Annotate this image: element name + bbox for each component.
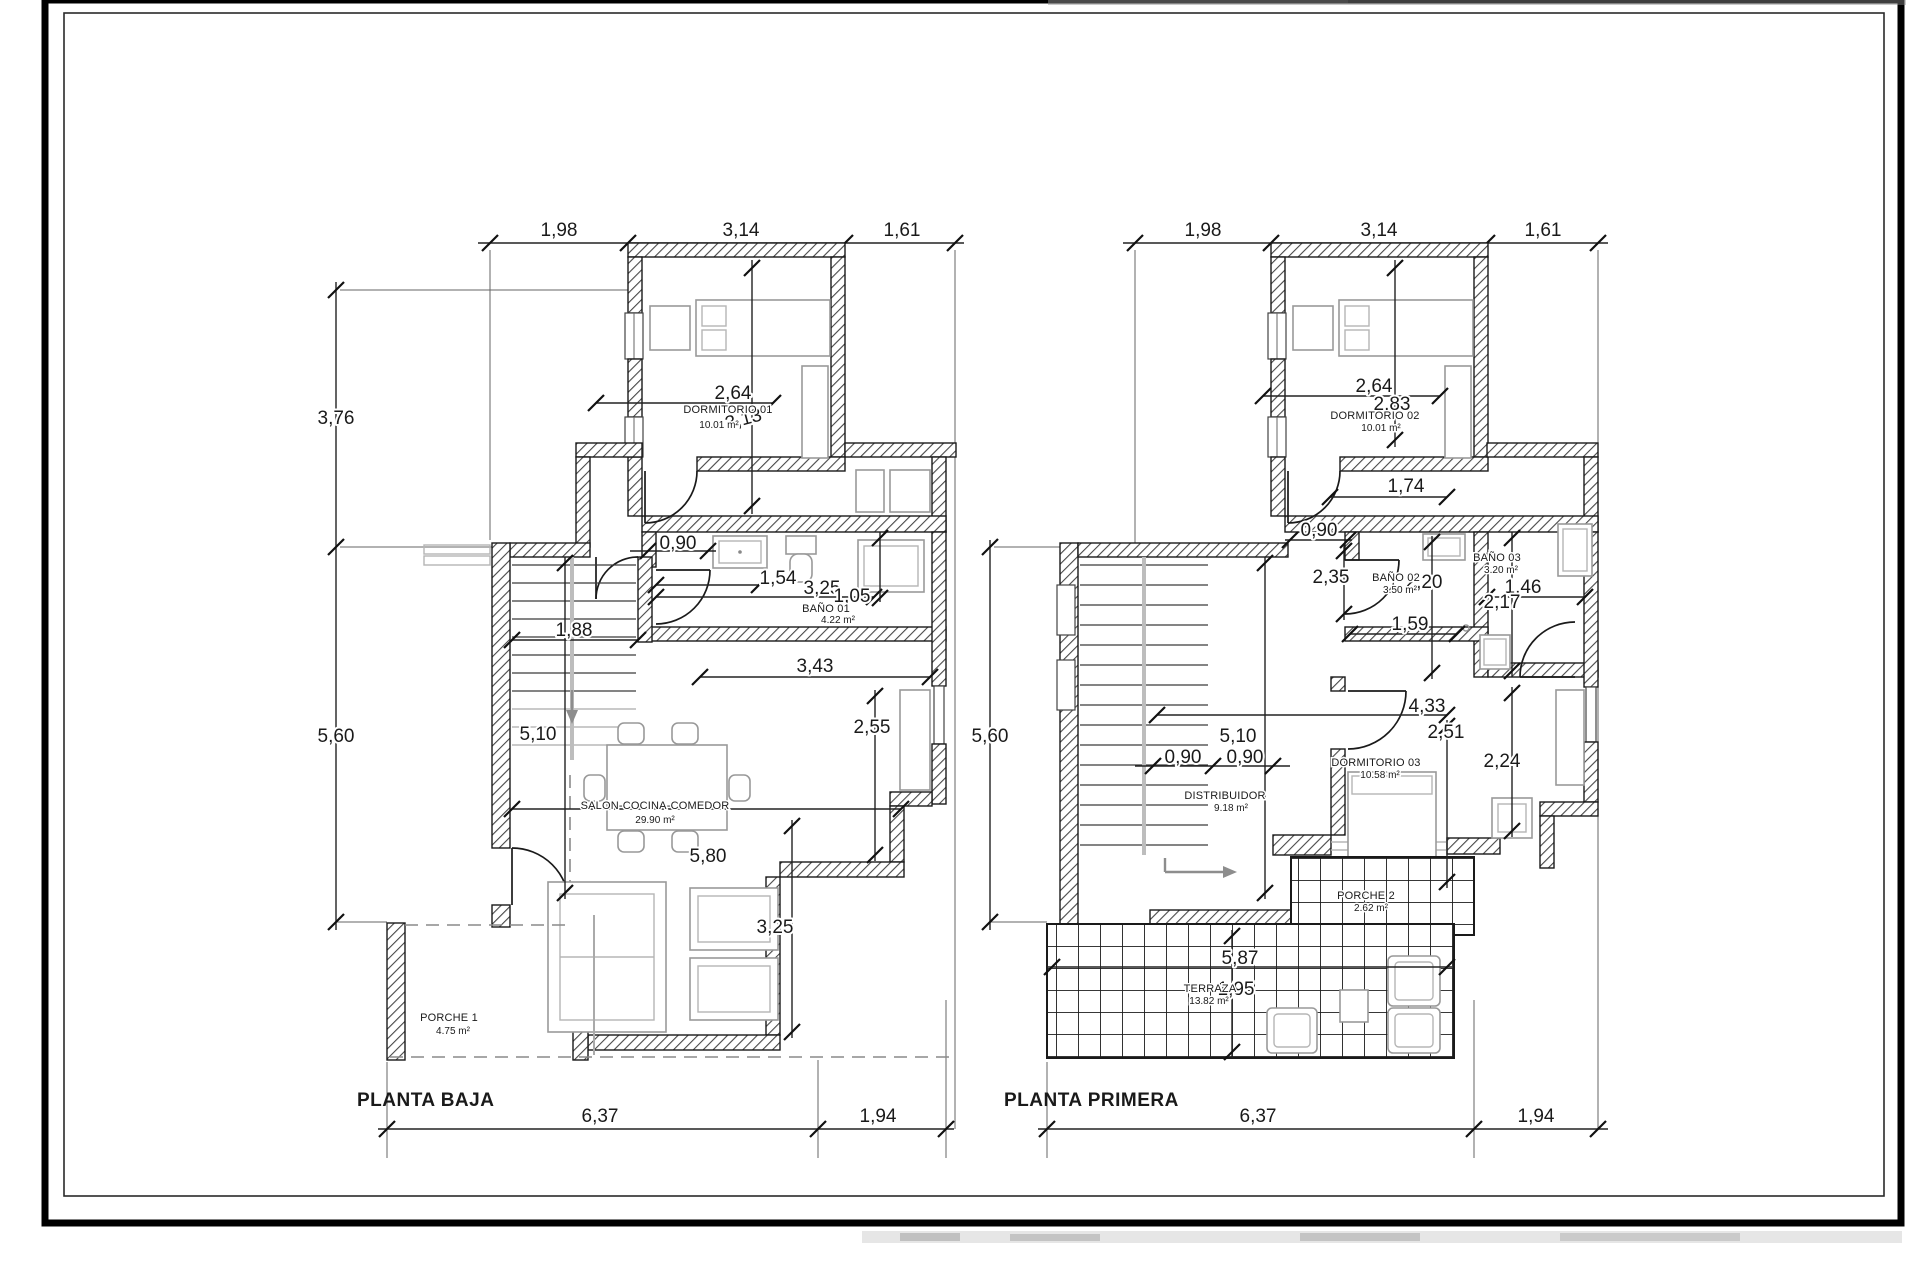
room-area-dormitorio02: 10.01 m² xyxy=(1361,423,1401,434)
pb-dim-560: 5,60 xyxy=(318,726,355,747)
pp-dim-510: 5,10 xyxy=(1220,726,1257,747)
room-label-distribuidor: DISTRIBUIDOR xyxy=(1184,790,1265,802)
pb-dim-161: 1,61 xyxy=(884,220,921,241)
pb-dim-376: 3,76 xyxy=(318,408,355,429)
pp-dim-314: 3,14 xyxy=(1361,220,1398,241)
floor-plan-drawing: 1,98 3,14 1,61 3,76 5,60 6,37 1,94 xyxy=(0,0,1920,1280)
room-label-bano01: BAÑO 01 xyxy=(802,602,850,615)
room-label-porche2: PORCHE 2 xyxy=(1337,890,1395,902)
pp-dim-090b: 0,90 xyxy=(1227,747,1264,768)
pb-dim-637: 6,37 xyxy=(582,1106,619,1127)
room-label-dormitorio01: DORMITORIO 01 xyxy=(683,404,772,416)
room-area-dormitorio01: 10.01 m² xyxy=(699,420,739,431)
room-label-bano02: BAÑO 02 xyxy=(1372,571,1420,584)
room-area-bano02: 3.50 m² xyxy=(1383,585,1418,596)
pp-dim-235: 2,35 xyxy=(1313,567,1350,588)
room-label-porche1: PORCHE 1 xyxy=(420,1012,478,1024)
pp-dim-174: 1,74 xyxy=(1388,476,1425,497)
pp-dim-090a: 0,90 xyxy=(1165,747,1202,768)
room-label-bano03: BAÑO 03 xyxy=(1473,551,1521,564)
pb-dim-255: 2,55 xyxy=(854,717,891,738)
pp-dim-198: 1,98 xyxy=(1185,220,1222,241)
pp-dim-159: 1,59 xyxy=(1392,614,1429,635)
pp-dim-161: 1,61 xyxy=(1525,220,1562,241)
pp-dim-433: 4,33 xyxy=(1409,696,1446,717)
room-area-bano01: 4.22 m² xyxy=(821,615,856,626)
room-area-bano03: 3.20 m² xyxy=(1484,565,1519,576)
pp-dim-560: 5,60 xyxy=(972,726,1009,747)
pp-dim-587: 5,87 xyxy=(1222,948,1259,969)
plan-title-planta-baja: PLANTA BAJA xyxy=(357,1090,494,1111)
room-area-porche2: 2.62 m² xyxy=(1354,903,1389,914)
plan-title-planta-primera: PLANTA PRIMERA xyxy=(1004,1090,1179,1111)
pb-dim-264: 2,64 xyxy=(715,383,752,404)
pb-dim-580: 5,80 xyxy=(690,846,727,867)
pb-dim-343: 3,43 xyxy=(797,656,834,677)
room-label-dormitorio02: DORMITORIO 02 xyxy=(1330,410,1419,422)
room-area-terraza: 13.82 m² xyxy=(1189,996,1229,1007)
pb-dim-510: 5,10 xyxy=(520,724,557,745)
pp-dim-left: 5,60 xyxy=(972,539,1009,930)
room-label-dormitorio03: DORMITORIO 03 xyxy=(1331,757,1420,769)
pb-dim-325b: 3,25 xyxy=(757,917,794,938)
pb-dim-154: 1,54 xyxy=(760,568,797,589)
pb-dim-198: 1,98 xyxy=(541,220,578,241)
pp-dim-251: 2,51 xyxy=(1428,722,1465,743)
pb-dim-314: 3,14 xyxy=(723,220,760,241)
pp-dim-637: 6,37 xyxy=(1240,1106,1277,1127)
pb-dim-left: 3,76 5,60 xyxy=(318,282,355,930)
pp-dim-194: 1,94 xyxy=(1518,1106,1555,1127)
pp-terrace xyxy=(1047,857,1474,1058)
pp-dim-224: 2,24 xyxy=(1484,751,1521,772)
room-label-salon: SALON-COCINA-COMEDOR xyxy=(581,800,730,812)
plan-planta-primera: 1,98 3,14 1,61 5,60 6,37 1,94 xyxy=(972,220,1608,1158)
room-area-distribuidor: 9.18 m² xyxy=(1214,803,1249,814)
pp-stairs xyxy=(1080,557,1237,878)
pb-dim-090: 0,90 xyxy=(660,533,697,554)
pb-walls xyxy=(387,243,956,1060)
floor-plan-sheet: 1,98 3,14 1,61 3,76 5,60 6,37 1,94 xyxy=(0,0,1920,1280)
pp-dim-217: 2,17 xyxy=(1484,592,1521,613)
plan-planta-baja: 1,98 3,14 1,61 3,76 5,60 6,37 1,94 xyxy=(318,220,964,1158)
sheet-border xyxy=(45,0,1901,1223)
room-label-terraza: TERRAZA xyxy=(1184,983,1237,995)
room-area-salon: 29.90 m² xyxy=(635,815,675,826)
pb-dim-194: 1,94 xyxy=(860,1106,897,1127)
room-area-porche1: 4.75 m² xyxy=(436,1026,471,1037)
room-area-dormitorio03: 10.58 m² xyxy=(1360,770,1400,781)
pp-dim-090: 0,90 xyxy=(1301,520,1338,541)
pb-dim-188: 1,88 xyxy=(556,620,593,641)
